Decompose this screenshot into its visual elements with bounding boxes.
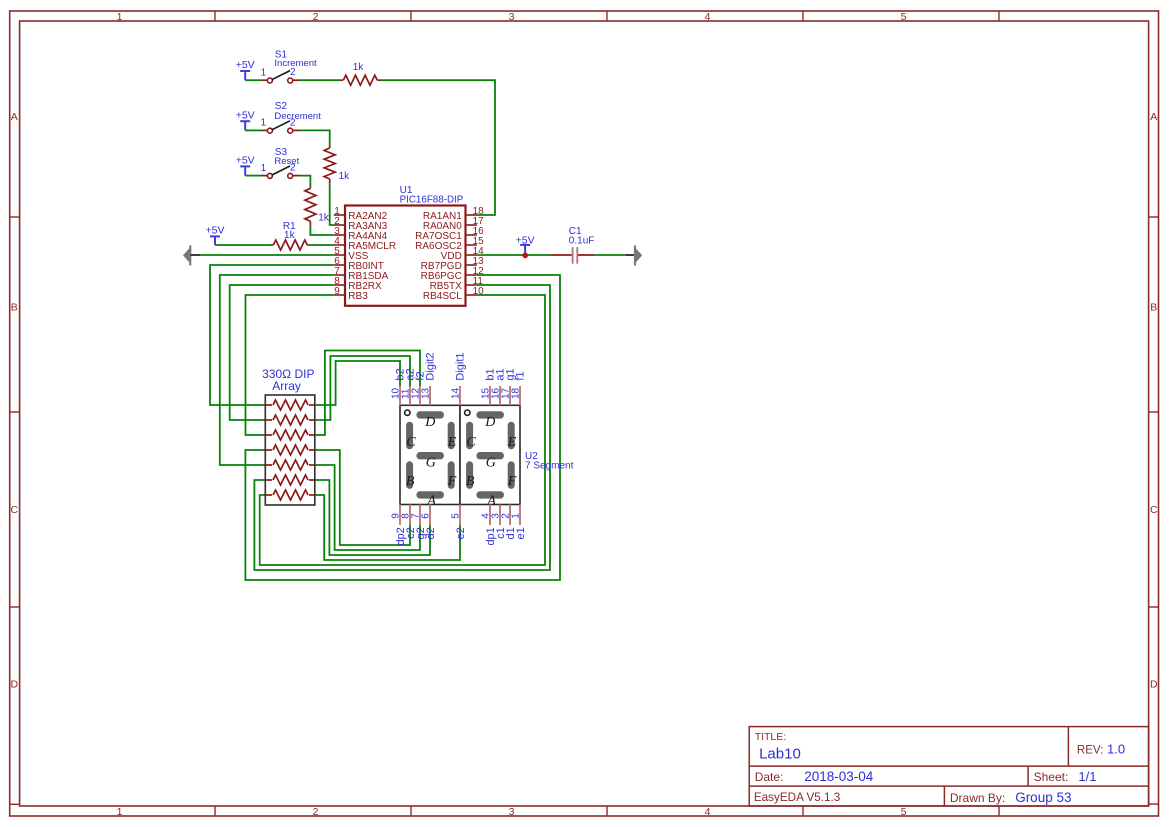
svg-text:F: F	[507, 474, 517, 489]
svg-text:EasyEDA V5.1.3: EasyEDA V5.1.3	[754, 791, 840, 804]
svg-text:1: 1	[261, 118, 267, 129]
svg-text:B: B	[466, 474, 475, 489]
svg-text:5: 5	[451, 513, 462, 519]
svg-text:13: 13	[421, 387, 432, 399]
svg-text:F: F	[447, 474, 457, 489]
svg-text:C: C	[1150, 504, 1158, 516]
svg-text:D: D	[484, 415, 495, 430]
svg-text:D: D	[1150, 679, 1158, 691]
svg-text:G: G	[486, 455, 496, 470]
svg-text:1: 1	[261, 163, 267, 174]
svg-text:+5V: +5V	[206, 225, 225, 237]
svg-text:0.1uF: 0.1uF	[569, 236, 595, 247]
svg-text:Date:: Date:	[755, 770, 784, 784]
svg-text:Digit1: Digit1	[454, 352, 466, 380]
svg-text:Decrement: Decrement	[274, 111, 321, 122]
svg-text:9: 9	[334, 286, 340, 297]
svg-text:3: 3	[509, 11, 515, 23]
svg-text:A: A	[1150, 111, 1157, 123]
svg-text:d2: d2	[425, 527, 437, 539]
svg-text:2: 2	[313, 11, 319, 23]
svg-text:1k: 1k	[318, 212, 330, 223]
svg-text:Group 53: Group 53	[1015, 790, 1071, 805]
svg-text:G: G	[426, 455, 436, 470]
svg-text:Array: Array	[272, 379, 301, 393]
svg-text:5: 5	[901, 806, 907, 818]
svg-text:18: 18	[511, 387, 522, 399]
svg-text:E: E	[507, 435, 517, 450]
svg-text:e1: e1	[515, 527, 527, 539]
svg-text:Reset: Reset	[274, 156, 299, 167]
svg-text:2018-03-04: 2018-03-04	[804, 769, 874, 784]
svg-text:1: 1	[511, 513, 522, 519]
svg-text:f1: f1	[514, 371, 526, 380]
svg-text:B: B	[1150, 301, 1157, 313]
svg-text:Increment: Increment	[274, 58, 317, 69]
svg-text:Sheet:: Sheet:	[1034, 770, 1069, 784]
svg-text:4: 4	[705, 806, 711, 818]
svg-text:6: 6	[421, 513, 432, 519]
svg-text:TITLE:: TITLE:	[755, 731, 787, 743]
svg-text:7 Segment: 7 Segment	[525, 460, 574, 471]
svg-text:3: 3	[509, 806, 515, 818]
svg-text:B: B	[11, 301, 18, 313]
svg-text:1/1: 1/1	[1078, 769, 1096, 784]
svg-text:C: C	[466, 435, 476, 450]
svg-text:RB3: RB3	[348, 291, 368, 302]
svg-text:1.0: 1.0	[1107, 741, 1125, 756]
svg-text:+5V: +5V	[236, 155, 255, 167]
svg-text:1k: 1k	[353, 62, 365, 73]
svg-text:1k: 1k	[284, 230, 296, 241]
svg-text:+5V: +5V	[516, 235, 535, 247]
svg-text:PIC16F88-DIP: PIC16F88-DIP	[400, 194, 464, 205]
svg-text:A: A	[11, 111, 18, 123]
svg-text:1: 1	[117, 11, 123, 23]
svg-text:A: A	[426, 493, 436, 508]
svg-text:C: C	[11, 504, 19, 516]
svg-text:1: 1	[117, 806, 123, 818]
svg-text:D: D	[424, 415, 435, 430]
svg-text:RB4SCL: RB4SCL	[423, 291, 462, 302]
svg-text:1k: 1k	[339, 171, 351, 182]
svg-text:Digit2: Digit2	[424, 352, 436, 380]
svg-text:e2: e2	[455, 527, 467, 539]
svg-text:Drawn By:: Drawn By:	[950, 791, 1005, 805]
svg-text:Lab10: Lab10	[759, 745, 801, 762]
svg-text:B: B	[406, 474, 415, 489]
svg-text:14: 14	[451, 387, 462, 399]
svg-text:E: E	[447, 435, 457, 450]
svg-text:5: 5	[901, 11, 907, 23]
svg-text:+5V: +5V	[236, 59, 255, 71]
svg-text:REV:: REV:	[1077, 744, 1103, 756]
svg-text:4: 4	[705, 11, 711, 23]
svg-text:A: A	[486, 493, 496, 508]
svg-text:D: D	[11, 679, 19, 691]
svg-text:C: C	[406, 435, 416, 450]
svg-text:2: 2	[313, 806, 319, 818]
svg-text:1: 1	[261, 67, 267, 78]
svg-text:+5V: +5V	[236, 109, 255, 121]
